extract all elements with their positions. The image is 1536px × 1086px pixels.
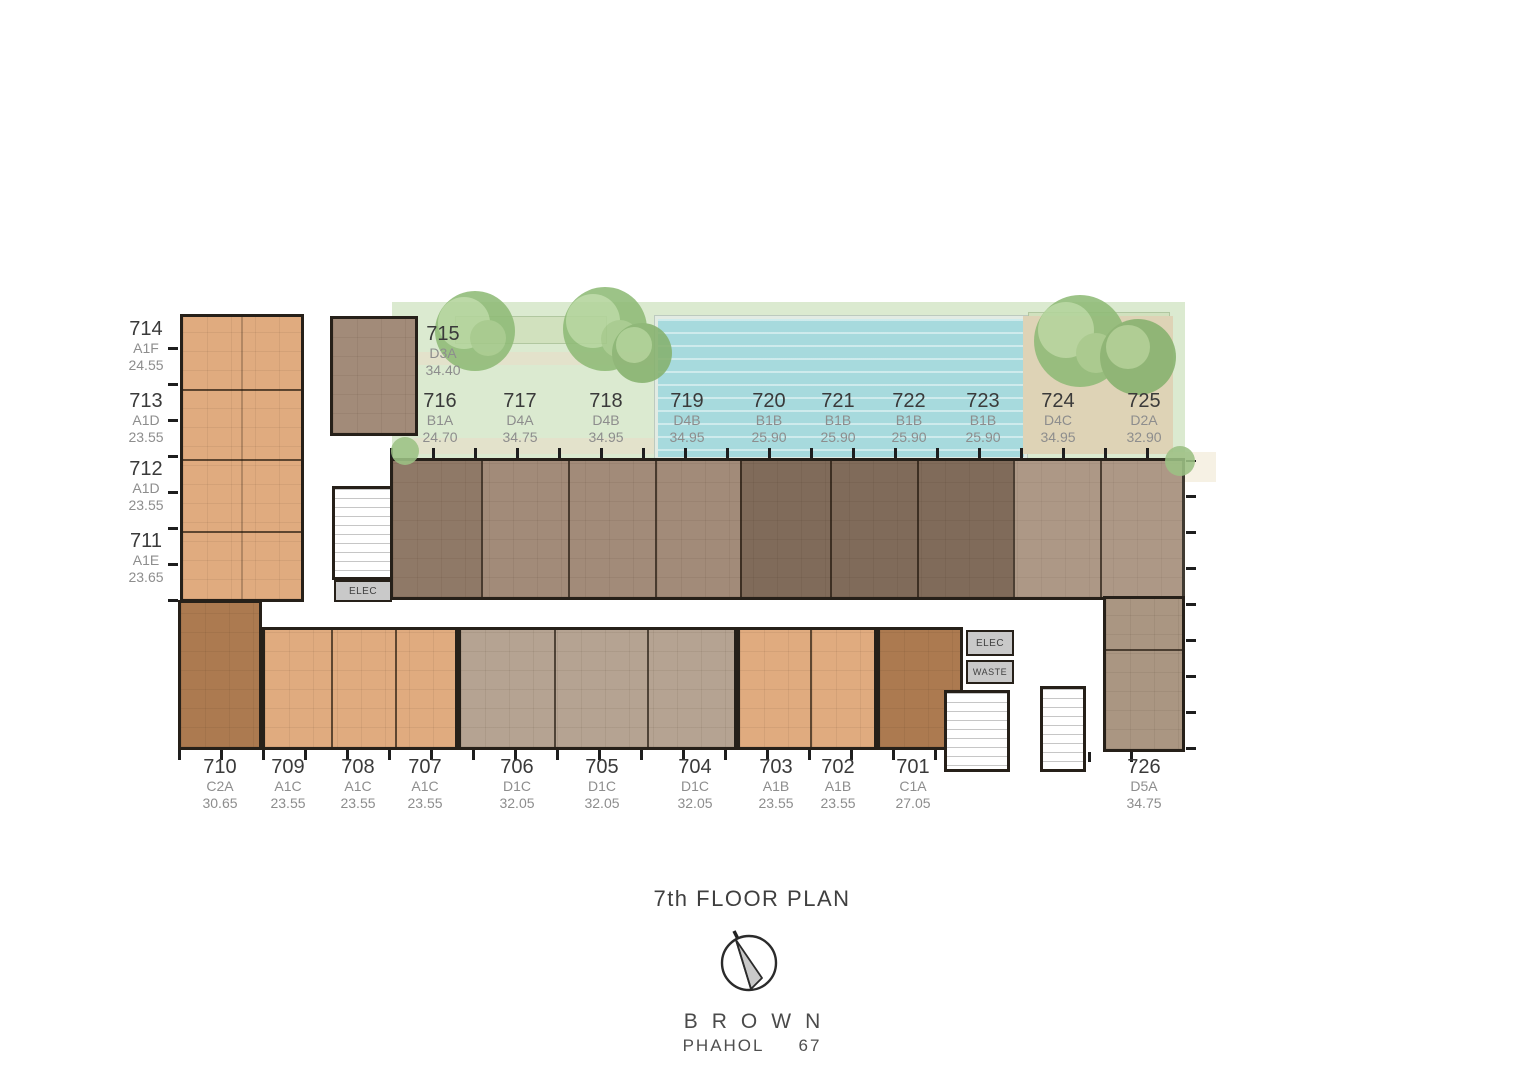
unit-type: D4C: [1040, 412, 1075, 429]
unit-label-701: 701C1A27.05: [895, 756, 930, 812]
unit-label-722: 722B1B25.90: [891, 390, 926, 446]
elec-room-left-label: ELEC: [349, 586, 377, 597]
waste-room: WASTE: [966, 660, 1014, 684]
lower-units-706-704: [458, 627, 737, 750]
unit-710-block: [178, 600, 262, 750]
unit-label-720: 720B1B25.90: [751, 390, 786, 446]
unit-number: 704: [677, 756, 712, 778]
left-wing-units: [180, 314, 304, 602]
unit-label-724: 724D4C34.95: [1040, 390, 1075, 446]
unit-area: 23.65: [128, 569, 163, 586]
unit-area: 23.55: [270, 795, 305, 812]
unit-area: 34.75: [502, 429, 537, 446]
trees-layer: [380, 283, 1200, 478]
lower-units-703-702: [737, 627, 877, 750]
unit-area: 23.55: [340, 795, 375, 812]
unit-number: 719: [669, 390, 704, 412]
unit-label-710: 710C2A30.65: [202, 756, 237, 812]
unit-type: A1D: [128, 480, 163, 497]
unit-label-717: 717D4A34.75: [502, 390, 537, 446]
upper-seg-dark-mid: [740, 461, 1013, 597]
unit-label-723: 723B1B25.90: [965, 390, 1000, 446]
unit-number: 703: [758, 756, 793, 778]
unit-type: D1C: [677, 778, 712, 795]
unit-area: 34.95: [588, 429, 623, 446]
unit-number: 724: [1040, 390, 1075, 412]
unit-type: A1B: [820, 778, 855, 795]
waste-room-label: WASTE: [973, 667, 1007, 677]
unit-area: 25.90: [965, 429, 1000, 446]
unit-area: 24.70: [422, 429, 457, 446]
unit-label-713: 713A1D23.55: [128, 390, 163, 446]
unit-area: 32.05: [677, 795, 712, 812]
unit-type: D2A: [1126, 412, 1161, 429]
unit-label-703: 703A1B23.55: [758, 756, 793, 812]
unit-number: 712: [128, 458, 163, 480]
unit-number: 720: [751, 390, 786, 412]
unit-number: 707: [407, 756, 442, 778]
location-number: 67: [799, 1036, 822, 1055]
right-wing-elevator: [1040, 686, 1086, 772]
unit-number: 722: [891, 390, 926, 412]
right-wing-units: [1103, 596, 1185, 752]
unit-label-725: 725D2A32.90: [1126, 390, 1161, 446]
unit-type: D4B: [588, 412, 623, 429]
unit-area: 30.65: [202, 795, 237, 812]
unit-area: 23.55: [758, 795, 793, 812]
unit-label-712: 712A1D23.55: [128, 458, 163, 514]
unit-area: 27.05: [895, 795, 930, 812]
unit-area: 32.05: [499, 795, 534, 812]
lower-units-709-707: [262, 627, 458, 750]
location-name: PHAHOL: [683, 1036, 765, 1055]
unit-number: 708: [340, 756, 375, 778]
unit-label-711: 711A1E23.65: [128, 530, 163, 586]
unit-number: 721: [820, 390, 855, 412]
unit-number: 702: [820, 756, 855, 778]
unit-area: 34.95: [669, 429, 704, 446]
unit-number: 701: [895, 756, 930, 778]
unit-label-715: 715D3A34.40: [425, 323, 460, 379]
unit-area: 23.55: [128, 429, 163, 446]
unit-label-718: 718D4B34.95: [588, 390, 623, 446]
unit-type: B1A: [422, 412, 457, 429]
unit-type: C2A: [202, 778, 237, 795]
unit-type: A1C: [407, 778, 442, 795]
unit-number: 718: [588, 390, 623, 412]
unit-type: B1B: [751, 412, 786, 429]
unit-number: 710: [202, 756, 237, 778]
unit-type: B1B: [891, 412, 926, 429]
unit-type: D1C: [499, 778, 534, 795]
unit-type: A1F: [128, 340, 163, 357]
unit-type: A1B: [758, 778, 793, 795]
unit-area: 23.55: [820, 795, 855, 812]
unit-area: 23.55: [407, 795, 442, 812]
unit-type: D4A: [502, 412, 537, 429]
dimension-ticks-right: [1186, 460, 1196, 750]
tree-icon: [391, 287, 1195, 476]
brand-name: BROWN: [670, 1010, 835, 1034]
unit-label-708: 708A1C23.55: [340, 756, 375, 812]
unit-label-707: 707A1C23.55: [407, 756, 442, 812]
unit-type: A1E: [128, 552, 163, 569]
upper-unit-band: [390, 458, 1185, 600]
unit-label-705: 705D1C32.05: [584, 756, 619, 812]
unit-type: D1C: [584, 778, 619, 795]
unit-label-721: 721B1B25.90: [820, 390, 855, 446]
unit-label-702: 702A1B23.55: [820, 756, 855, 812]
unit-area: 25.90: [751, 429, 786, 446]
unit-area: 24.55: [128, 357, 163, 374]
unit-number: 717: [502, 390, 537, 412]
elec-room-left: ELEC: [334, 580, 392, 602]
unit-type: B1B: [965, 412, 1000, 429]
unit-number: 706: [499, 756, 534, 778]
unit-label-719: 719D4B34.95: [669, 390, 704, 446]
unit-type: A1C: [270, 778, 305, 795]
unit-number: 711: [128, 530, 163, 552]
compass-icon: [716, 930, 782, 996]
unit-area: 34.95: [1040, 429, 1075, 446]
unit-label-726: 726D5A34.75: [1126, 756, 1161, 812]
unit-label-714: 714A1F24.55: [128, 318, 163, 374]
unit-type: A1D: [128, 412, 163, 429]
unit-number: 715: [425, 323, 460, 345]
unit-label-704: 704D1C32.05: [677, 756, 712, 812]
dimension-ticks-left: [168, 314, 178, 602]
unit-number: 705: [584, 756, 619, 778]
unit-area: 32.90: [1126, 429, 1161, 446]
unit-type: D4B: [669, 412, 704, 429]
unit-label-716: 716B1A24.70: [422, 390, 457, 446]
unit-number: 713: [128, 390, 163, 412]
unit-area: 34.40: [425, 362, 460, 379]
unit-type: C1A: [895, 778, 930, 795]
unit-number: 709: [270, 756, 305, 778]
unit-area: 23.55: [128, 497, 163, 514]
unit-type: D3A: [425, 345, 460, 362]
unit-type: A1C: [340, 778, 375, 795]
unit-number: 723: [965, 390, 1000, 412]
floor-plan-title: 7th FLOOR PLAN: [653, 886, 850, 912]
unit-area: 25.90: [891, 429, 926, 446]
unit-number: 726: [1126, 756, 1161, 778]
unit-number: 716: [422, 390, 457, 412]
unit-number: 725: [1126, 390, 1161, 412]
elec-room-right-label: ELEC: [976, 638, 1004, 649]
elec-room-right: ELEC: [966, 630, 1014, 656]
upper-seg-dark-left: [393, 461, 481, 597]
unit-type: B1B: [820, 412, 855, 429]
unit-area: 32.05: [584, 795, 619, 812]
unit-type: D5A: [1126, 778, 1161, 795]
unit-label-709: 709A1C23.55: [270, 756, 305, 812]
unit-area: 25.90: [820, 429, 855, 446]
unit-label-706: 706D1C32.05: [499, 756, 534, 812]
brand-location: PHAHOL67: [683, 1036, 822, 1056]
left-stairwell: [332, 486, 394, 580]
unit-area: 34.75: [1126, 795, 1161, 812]
unit-number: 714: [128, 318, 163, 340]
